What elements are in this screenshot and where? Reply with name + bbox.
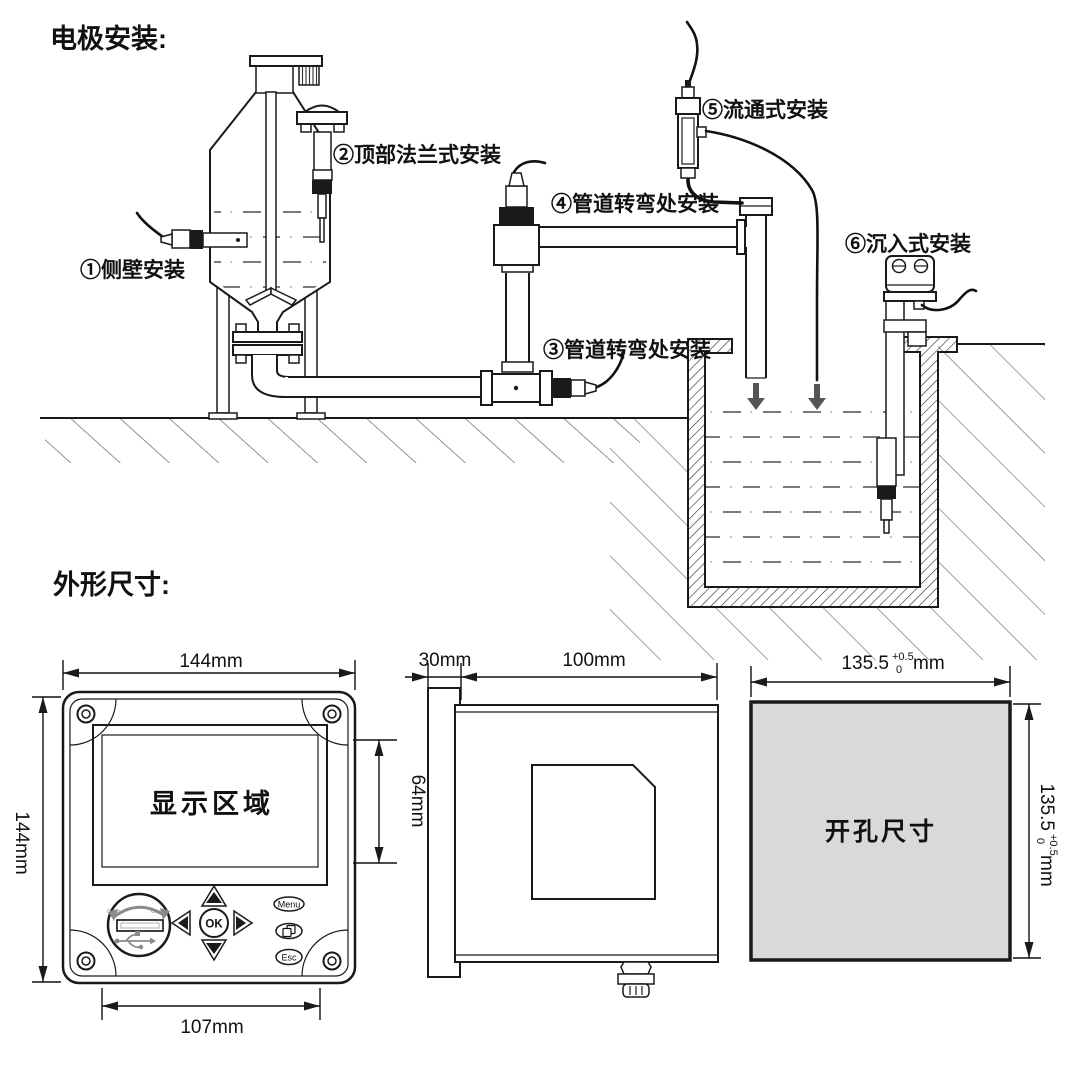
agitator-motor xyxy=(299,66,319,85)
tank-bottom-flange-bottom xyxy=(233,345,302,355)
electrode2-flange xyxy=(297,112,347,124)
electrode6-bracket xyxy=(886,256,934,292)
electrode6-body xyxy=(877,438,896,486)
screw-icon xyxy=(324,706,341,723)
flowcell-hex-cap xyxy=(676,98,700,114)
electrode2-gland xyxy=(312,180,332,194)
electrode2-tube xyxy=(314,132,331,172)
branch-pipe-cap xyxy=(737,220,745,254)
agitator-shaft xyxy=(266,92,276,290)
flange-nut xyxy=(236,355,246,363)
electrode4-gland xyxy=(499,207,534,225)
usb-open-label: Open xyxy=(107,909,120,915)
flowcell-side-port xyxy=(697,127,706,137)
cutout-height-label-group: 135.5 +0.5 0 mm xyxy=(1034,783,1059,886)
cutout-height-tol-plus: +0.5 xyxy=(1047,834,1059,856)
install-label-submersion: ⑥沉入式安装 xyxy=(845,232,971,256)
tee4-body xyxy=(494,225,539,265)
electrode6-lower xyxy=(881,499,892,520)
electrode1-gland xyxy=(190,230,203,249)
bezel-depth-dim: 30mm xyxy=(419,650,472,671)
electrode4-hex xyxy=(506,186,527,207)
electrode3-gland xyxy=(552,378,571,398)
menu-button-label: Menu xyxy=(278,900,301,910)
electrode1-hex-nut xyxy=(172,230,190,248)
install-label-side-wall: ①侧壁安装 xyxy=(80,258,185,282)
esc-button-label: Esc xyxy=(281,953,297,963)
cutout-label: 开孔尺寸 xyxy=(825,818,937,846)
front-width-dim: 144mm xyxy=(179,651,242,672)
electrode-section-title: 电极安装: xyxy=(50,24,167,54)
electrode2-body xyxy=(313,170,332,180)
electrode2-probe-tip xyxy=(320,218,324,242)
electrode4-cable xyxy=(514,161,545,172)
cutout-width-unit: mm xyxy=(913,653,945,674)
electrode2-bolt-right xyxy=(334,124,344,132)
install-label-pipe-bend-3: ③管道转弯处安装 xyxy=(543,338,711,362)
tank-bottom-flange-top xyxy=(233,332,302,342)
usb-slot[interactable] xyxy=(117,920,163,931)
cutout-height-dimension: 135.5 +0.5 0 mm xyxy=(1013,704,1059,958)
side-body xyxy=(455,705,718,962)
install-label-pipe-bend-4: ④管道转弯处安装 xyxy=(551,192,719,216)
install-label-top-flange: ②顶部法兰式安装 xyxy=(333,143,501,167)
flowcell-connector xyxy=(682,87,694,98)
display-height-dim: 64mm xyxy=(407,775,428,828)
usb-icon xyxy=(115,931,156,949)
tee3-cap-right xyxy=(540,371,552,405)
electrode1-body xyxy=(203,233,247,247)
front-view: 显示区域 Open Close xyxy=(11,651,428,1038)
electrode3-hex xyxy=(571,380,585,396)
install-label-flow-through: ⑤流通式安装 xyxy=(702,98,828,122)
flowcell-body xyxy=(678,114,698,168)
electrode6-clamp-leg xyxy=(908,332,926,346)
water-basin xyxy=(688,337,957,607)
display-area-label: 显示区域 xyxy=(150,789,274,819)
pipe-horizontal-fill xyxy=(285,377,481,397)
electrode6-base-plate xyxy=(884,292,936,301)
riser-collar-bottom xyxy=(502,362,533,372)
electrode1-dot xyxy=(236,238,240,242)
cutout-width-tol-zero: 0 xyxy=(896,664,902,676)
electrode2-bolt-left xyxy=(301,124,311,132)
flange-nut xyxy=(289,355,299,363)
front-bottom-dim: 107mm xyxy=(180,1017,243,1038)
cutout-height-tol-zero: 0 xyxy=(1034,838,1046,844)
electrode2-dome-cap xyxy=(305,106,339,113)
cutout-height-unit: mm xyxy=(1036,855,1057,887)
downpipe-fill xyxy=(746,215,766,378)
dimension-section-title: 外形尺寸: xyxy=(53,570,170,600)
front-height-dim: 144mm xyxy=(11,811,32,874)
tank-leg-left xyxy=(217,285,229,413)
front-corner-arc-tr xyxy=(302,699,348,745)
body-depth-dim: 100mm xyxy=(562,650,625,671)
electrode6-band xyxy=(877,486,896,499)
flange-bolt xyxy=(236,324,246,332)
cutout-width-tol-plus: +0.5 xyxy=(892,651,914,663)
electrode3-cone xyxy=(585,382,596,394)
side-view: 30mm 100mm xyxy=(405,650,718,997)
diagram-svg: 电极安装: 外形尺寸: xyxy=(0,0,1080,1085)
flange-bolt xyxy=(289,324,299,332)
usb-close-label: Close xyxy=(151,909,165,915)
flowcell-bottom-cap xyxy=(681,168,695,178)
flow-arrow-pipe xyxy=(747,383,765,410)
cutout-view: 开孔尺寸 135.5 +0.5 0 mm 135.5 +0.5 0 mm xyxy=(751,651,1059,960)
front-corner-arc-br xyxy=(302,930,348,976)
pipe-elbow-inner xyxy=(277,355,290,377)
electrode6-tip xyxy=(884,520,889,533)
flowcell-top-cable xyxy=(687,22,697,86)
electrode1-cable xyxy=(137,213,163,237)
cutout-width-value: 135.5 xyxy=(841,653,889,674)
dpad: OK xyxy=(172,886,252,960)
electrode4-cone xyxy=(509,173,524,186)
flowcell-cable-tip xyxy=(685,80,691,87)
tank-foot-left xyxy=(209,413,237,419)
screw-icon xyxy=(78,953,95,970)
usb-port-cover[interactable]: Open Close xyxy=(107,894,170,956)
reactor-tank xyxy=(209,56,481,419)
screw-icon xyxy=(78,706,95,723)
electrode6-clamp-arm xyxy=(884,320,926,332)
tank-neck xyxy=(256,66,293,93)
tee3-cap-left xyxy=(481,371,492,405)
tee3-dot xyxy=(514,386,518,390)
flow-arrow-cable xyxy=(808,384,826,410)
ok-button-label: OK xyxy=(205,919,223,931)
cable-gland xyxy=(618,962,654,997)
front-view-dimensions: 144mm 144mm 64mm 107mm xyxy=(11,651,428,1038)
technical-drawing-page: 电极安装: 外形尺寸: xyxy=(0,0,1080,1085)
ground-hatch-left xyxy=(45,419,640,463)
riser-fill xyxy=(506,273,529,371)
tank-foot-right xyxy=(297,413,325,419)
cutout-height-value: 135.5 xyxy=(1036,783,1057,831)
tank-top-plate xyxy=(250,56,322,66)
screw-icon xyxy=(324,953,341,970)
electrode2-probe xyxy=(318,194,326,218)
function-buttons: Menu Esc xyxy=(274,897,304,965)
